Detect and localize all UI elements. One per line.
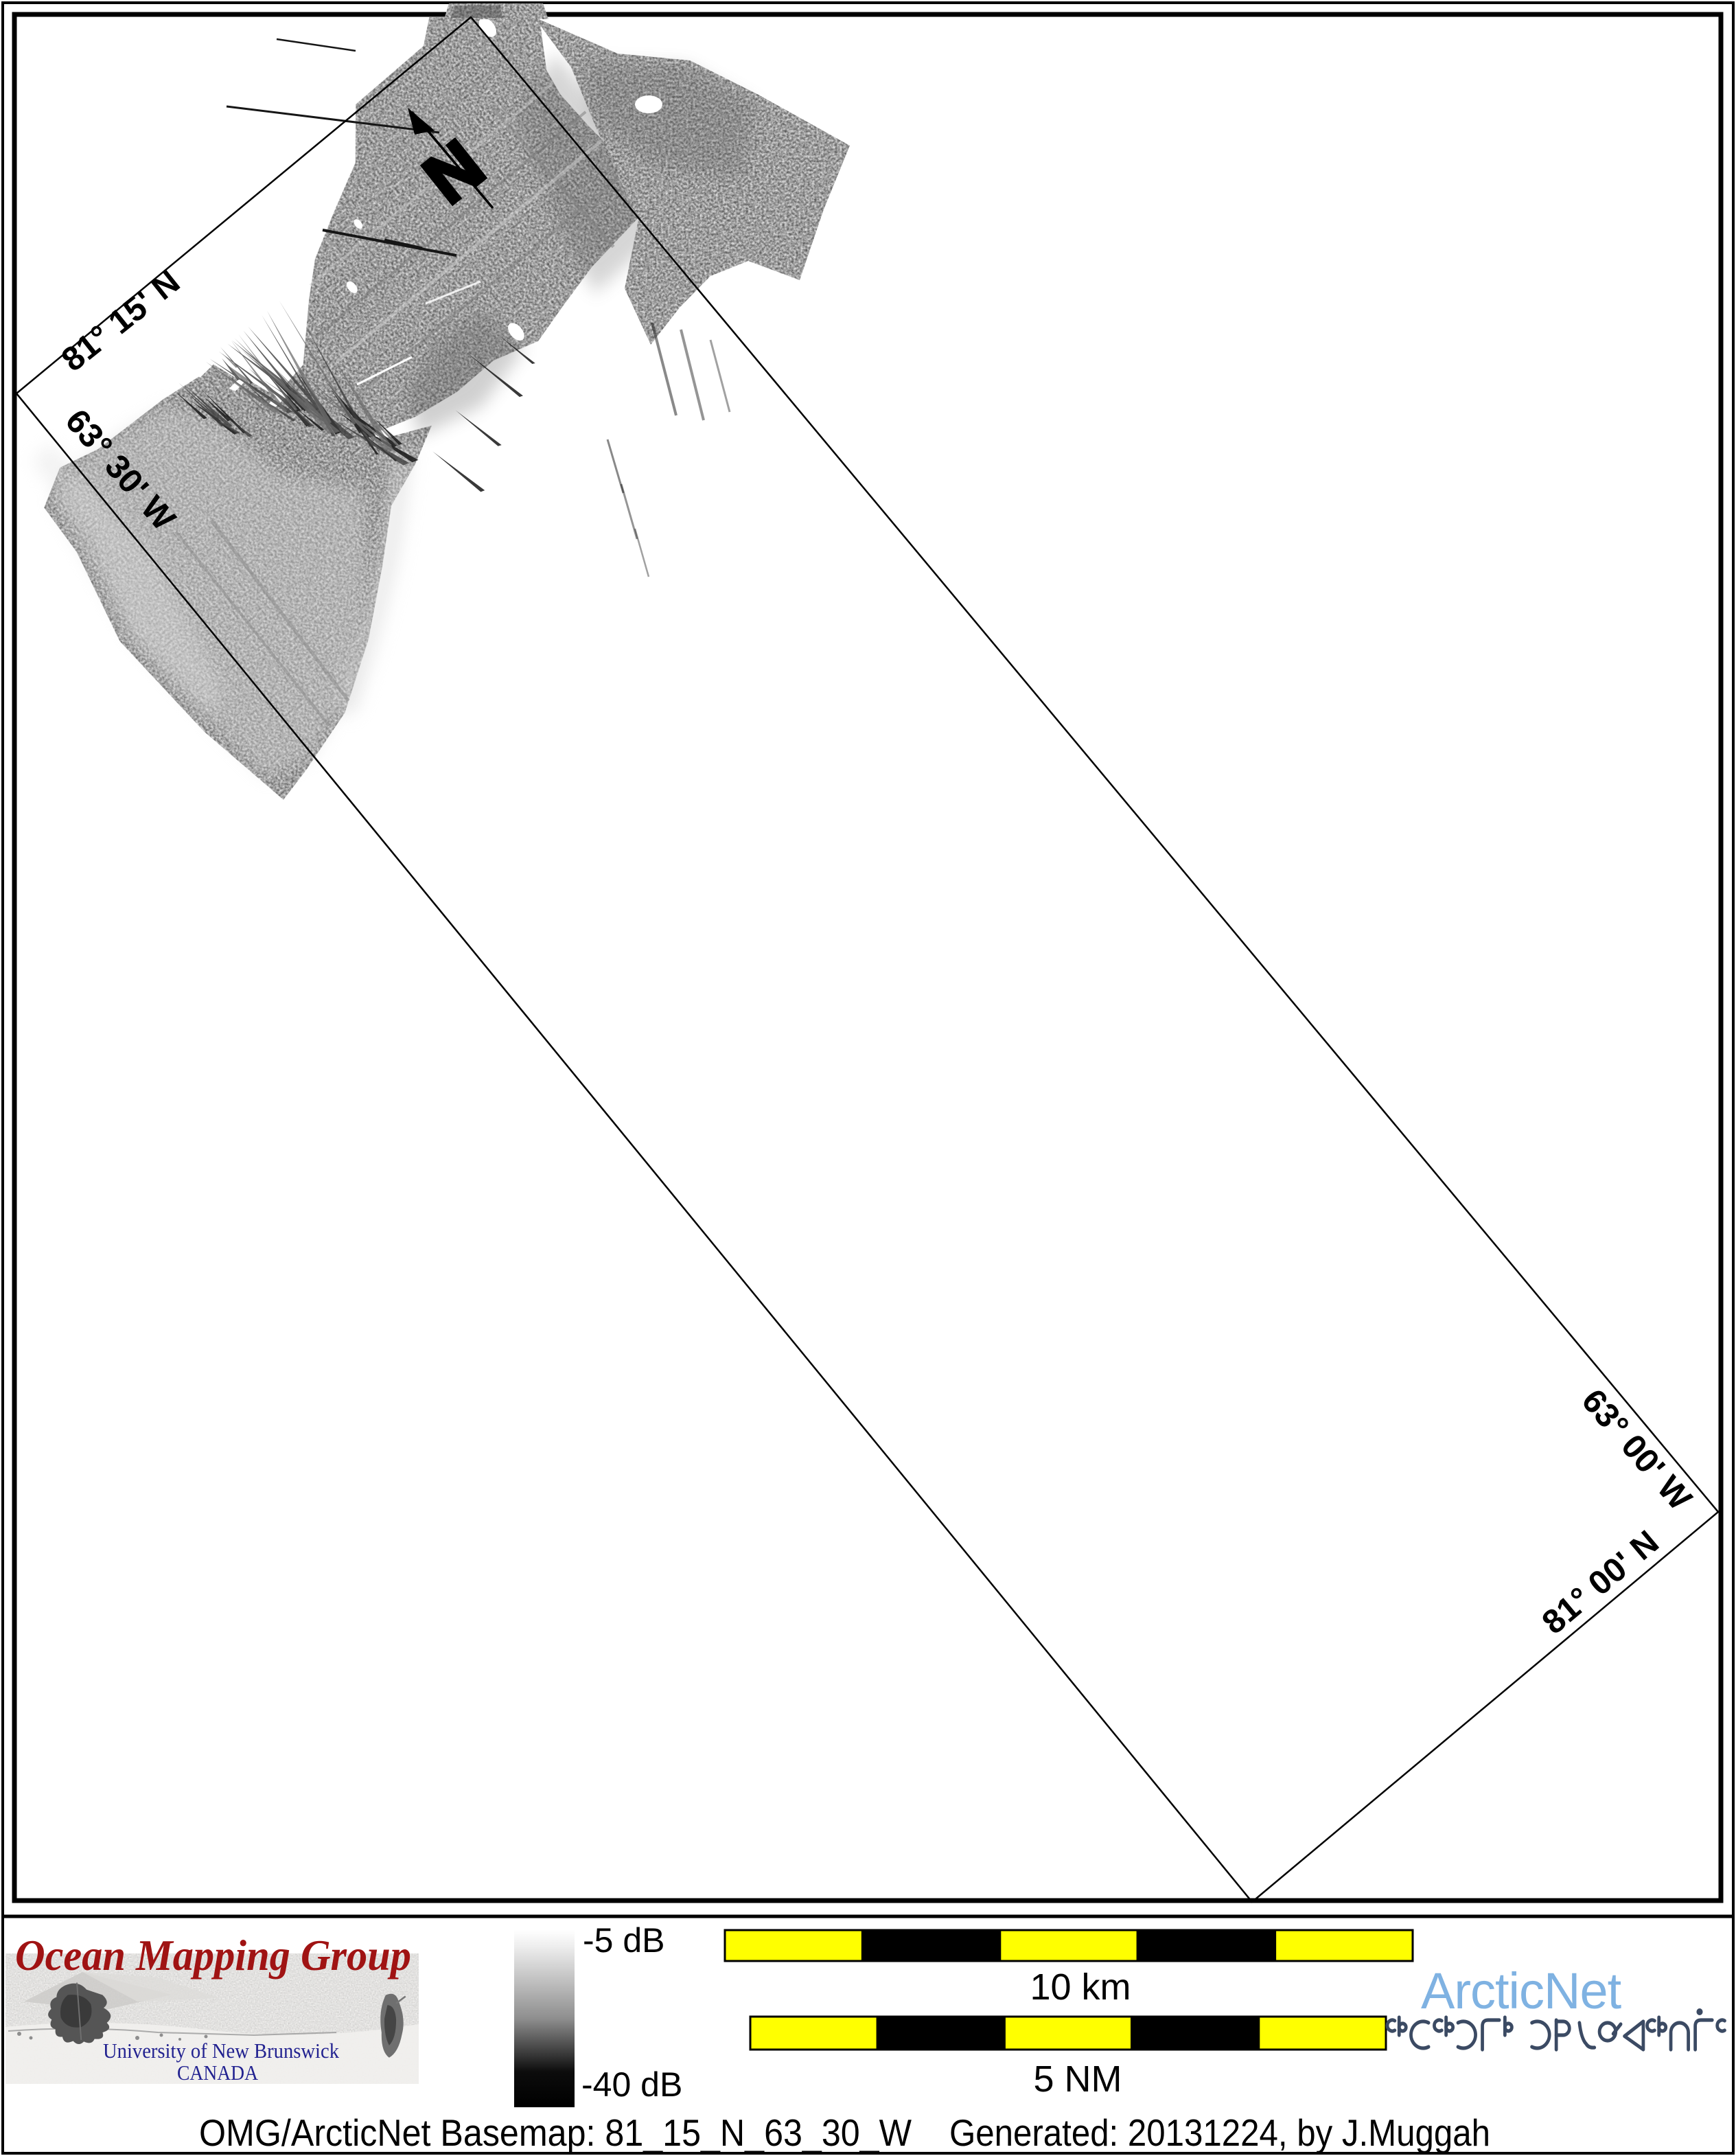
svg-text:OMG/ArcticNet Basemap: 81_15_N: OMG/ArcticNet Basemap: 81_15_N_63_30_W [199, 2111, 912, 2154]
svg-text:10 km: 10 km [1030, 1966, 1131, 2008]
svg-text:University of New Brunswick: University of New Brunswick [103, 2039, 339, 2063]
svg-text:-40 dB: -40 dB [581, 2065, 682, 2104]
svg-text:CANADA: CANADA [177, 2061, 259, 2085]
svg-text:Generated: 20131224, by J.Mugg: Generated: 20131224, by J.Muggah [949, 2111, 1490, 2154]
svg-text:Ocean Mapping Group: Ocean Mapping Group [15, 1931, 411, 1980]
svg-text:ArcticNet: ArcticNet [1421, 1962, 1622, 2019]
svg-text:-5 dB: -5 dB [583, 1921, 665, 1960]
svg-text:5 NM: 5 NM [1033, 2058, 1122, 2100]
